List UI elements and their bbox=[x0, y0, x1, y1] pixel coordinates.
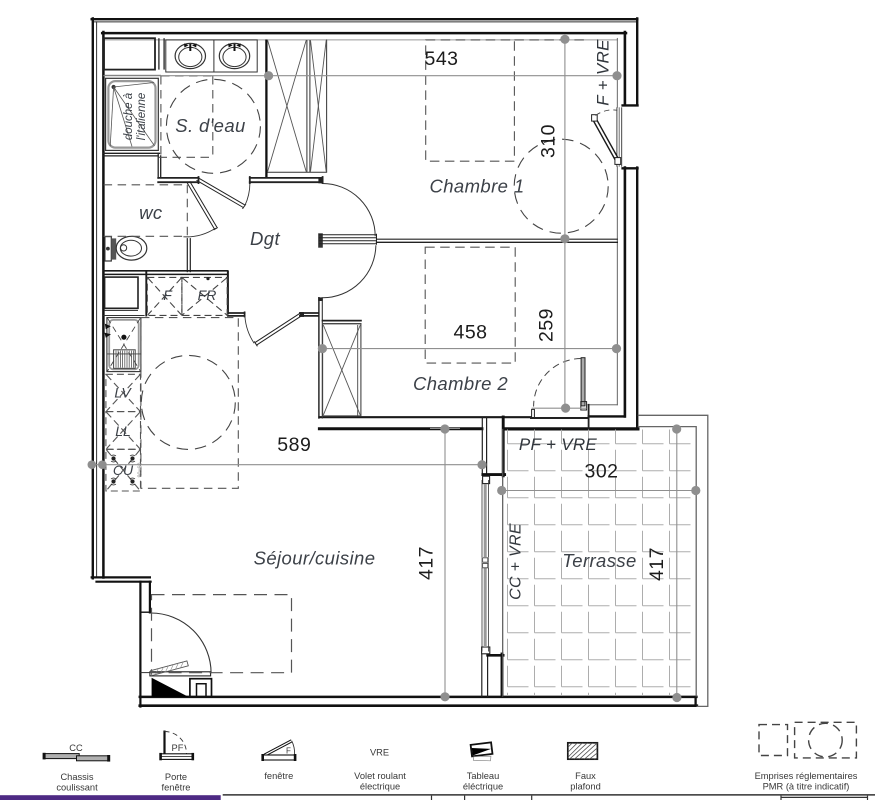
svg-text:302: 302 bbox=[584, 460, 618, 482]
svg-text:Terrasse: Terrasse bbox=[562, 550, 637, 571]
svg-text:wc: wc bbox=[139, 202, 163, 223]
svg-text:Chambre 1: Chambre 1 bbox=[429, 176, 524, 197]
svg-text:589: 589 bbox=[277, 434, 311, 456]
svg-text:F: F bbox=[163, 287, 173, 303]
svg-text:F + VRE: F + VRE bbox=[594, 39, 613, 106]
svg-text:Faux: Faux bbox=[575, 771, 596, 781]
svg-text:PF + VRE: PF + VRE bbox=[519, 435, 598, 454]
svg-text:Chassis: Chassis bbox=[60, 772, 93, 782]
svg-text:éléctrique: éléctrique bbox=[463, 781, 503, 791]
svg-text:417: 417 bbox=[646, 547, 668, 581]
svg-text:VRE: VRE bbox=[370, 748, 389, 758]
svg-text:F: F bbox=[286, 747, 291, 756]
svg-text:Séjour/cuisine: Séjour/cuisine bbox=[254, 548, 376, 569]
svg-text:417: 417 bbox=[416, 546, 438, 580]
svg-text:PF: PF bbox=[172, 743, 184, 753]
svg-text:259: 259 bbox=[536, 308, 558, 342]
svg-text:Volet roulant: Volet roulant bbox=[354, 771, 406, 781]
svg-text:CC + VRE: CC + VRE bbox=[508, 523, 525, 600]
svg-text:fenêtre: fenêtre bbox=[162, 783, 191, 793]
svg-text:310: 310 bbox=[538, 124, 560, 158]
svg-text:458: 458 bbox=[453, 322, 487, 344]
svg-text:électrique: électrique bbox=[360, 781, 400, 791]
svg-text:Dgt: Dgt bbox=[250, 228, 280, 249]
svg-text:l'italienne: l'italienne bbox=[136, 93, 148, 141]
svg-text:PMR (à titre indicatif): PMR (à titre indicatif) bbox=[763, 781, 850, 791]
svg-text:Porte: Porte bbox=[165, 772, 187, 782]
svg-text:CU: CU bbox=[113, 462, 134, 478]
svg-text:LL: LL bbox=[115, 423, 131, 439]
svg-text:FR: FR bbox=[198, 287, 217, 303]
svg-text:fenêtre: fenêtre bbox=[264, 771, 293, 781]
svg-text:Tableau: Tableau bbox=[467, 771, 500, 781]
svg-text:Chambre 2: Chambre 2 bbox=[413, 373, 508, 394]
svg-text:543: 543 bbox=[424, 48, 458, 70]
svg-text:coulissant: coulissant bbox=[56, 783, 98, 793]
svg-text:S. d'eau: S. d'eau bbox=[175, 115, 246, 136]
svg-text:LV: LV bbox=[114, 385, 132, 401]
svg-text:douche à: douche à bbox=[123, 92, 135, 140]
svg-text:Emprises réglementaires: Emprises réglementaires bbox=[755, 771, 858, 781]
svg-text:CC: CC bbox=[69, 743, 83, 753]
svg-text:90x60: 90x60 bbox=[138, 463, 144, 478]
svg-text:plafond: plafond bbox=[570, 781, 601, 791]
